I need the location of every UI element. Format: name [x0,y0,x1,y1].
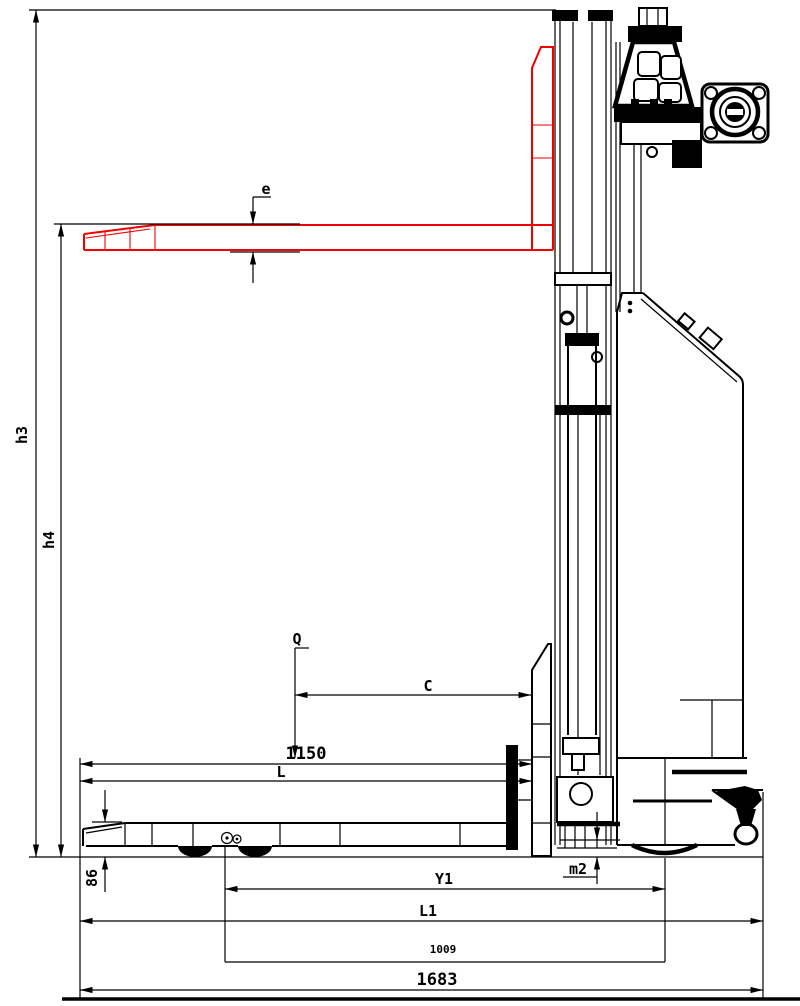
mast [552,10,613,845]
dim-label-1150: 1150 [286,744,327,764]
chassis-body [617,293,763,853]
dim-label-h4: h4 [40,531,58,549]
dimension-labels: h3 h4 e Q C 1150 L 86 Y1 m2 L1 1009 1683 [13,180,587,990]
fork-carriage-lowered [83,644,620,857]
mast-mid-tie [555,405,611,415]
bolt [647,147,657,157]
dim-label-1009: 1009 [430,943,457,956]
drive-motor [672,140,702,168]
dim-label-m2: m2 [569,860,587,878]
dim-label-q: Q [292,630,301,648]
load-wheel-rear [238,846,272,857]
fork-shank-lowered [506,745,518,850]
drive-wheel [632,845,697,853]
dim-label-c: C [423,677,432,695]
dim-label-h3: h3 [13,426,31,444]
fork-raised [84,47,553,250]
steering-knob [702,84,768,142]
mast-top-cap-right [588,10,613,21]
lift-cylinder [563,286,602,775]
mast-top-cap-left [552,10,578,21]
dim-label-e: e [261,180,270,198]
tiller-collar [628,26,682,42]
stacker-side-view-diagram: h3 h4 e Q C 1150 L 86 Y1 m2 L1 1009 1683 [0,0,800,1006]
dim-label-86: 86 [83,869,101,887]
dim-label-l: L [276,763,285,781]
mast-crossbar [555,273,611,285]
load-wheel-front [178,846,212,857]
dim-label-y1: Y1 [435,870,453,888]
dim-label-l1: L1 [419,902,437,920]
slope-fitting-1 [678,313,694,329]
fork-lowered [83,823,506,857]
tiller-top-cap [639,8,667,26]
tiller-base-plate [614,107,702,122]
technical-drawing-canvas: h3 h4 e Q C 1150 L 86 Y1 m2 L1 1009 1683 [0,0,800,1006]
caster-wheel [713,786,762,844]
tiller-head [614,8,768,312]
dim-label-1683: 1683 [417,970,458,990]
mast-roller [561,312,573,324]
